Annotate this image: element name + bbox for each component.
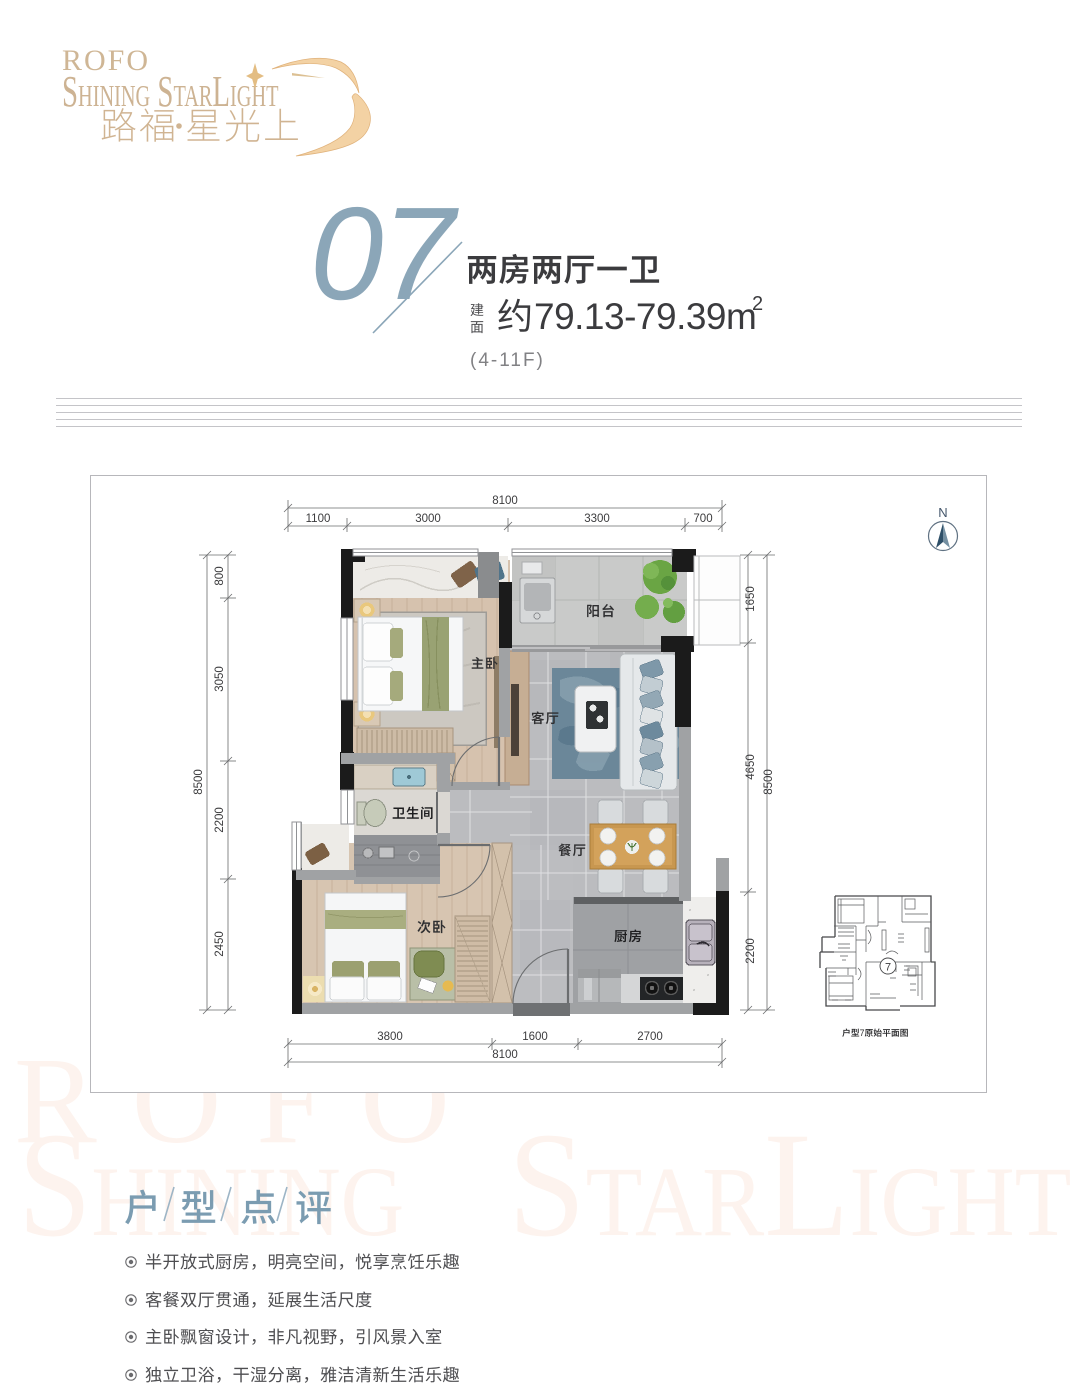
svg-text:2200: 2200 — [214, 807, 226, 833]
svg-text:3050: 3050 — [214, 666, 226, 692]
svg-text:7: 7 — [860, 1028, 865, 1038]
svg-text:8500: 8500 — [763, 769, 775, 795]
svg-text:7: 7 — [885, 962, 891, 974]
svg-text:4650: 4650 — [745, 754, 757, 780]
svg-text:2450: 2450 — [214, 931, 226, 957]
svg-text:3800: 3800 — [377, 1031, 403, 1043]
svg-text:N: N — [938, 505, 947, 520]
svg-text:800: 800 — [214, 566, 226, 585]
svg-text:(4-11F): (4-11F) — [470, 350, 545, 371]
svg-text:8500: 8500 — [193, 769, 205, 795]
svg-text:2200: 2200 — [745, 938, 757, 964]
svg-text:2: 2 — [752, 293, 763, 315]
svg-text:79.13-79.39m: 79.13-79.39m — [534, 296, 756, 337]
svg-text:1100: 1100 — [306, 513, 331, 525]
svg-text:8100: 8100 — [492, 495, 518, 507]
svg-text:2700: 2700 — [637, 1031, 663, 1043]
svg-text:3300: 3300 — [584, 513, 610, 525]
svg-text:700: 700 — [693, 513, 712, 525]
svg-text:1600: 1600 — [522, 1031, 548, 1043]
svg-text:8100: 8100 — [492, 1049, 518, 1061]
svg-text:1650: 1650 — [745, 586, 757, 612]
svg-text:3000: 3000 — [415, 513, 441, 525]
